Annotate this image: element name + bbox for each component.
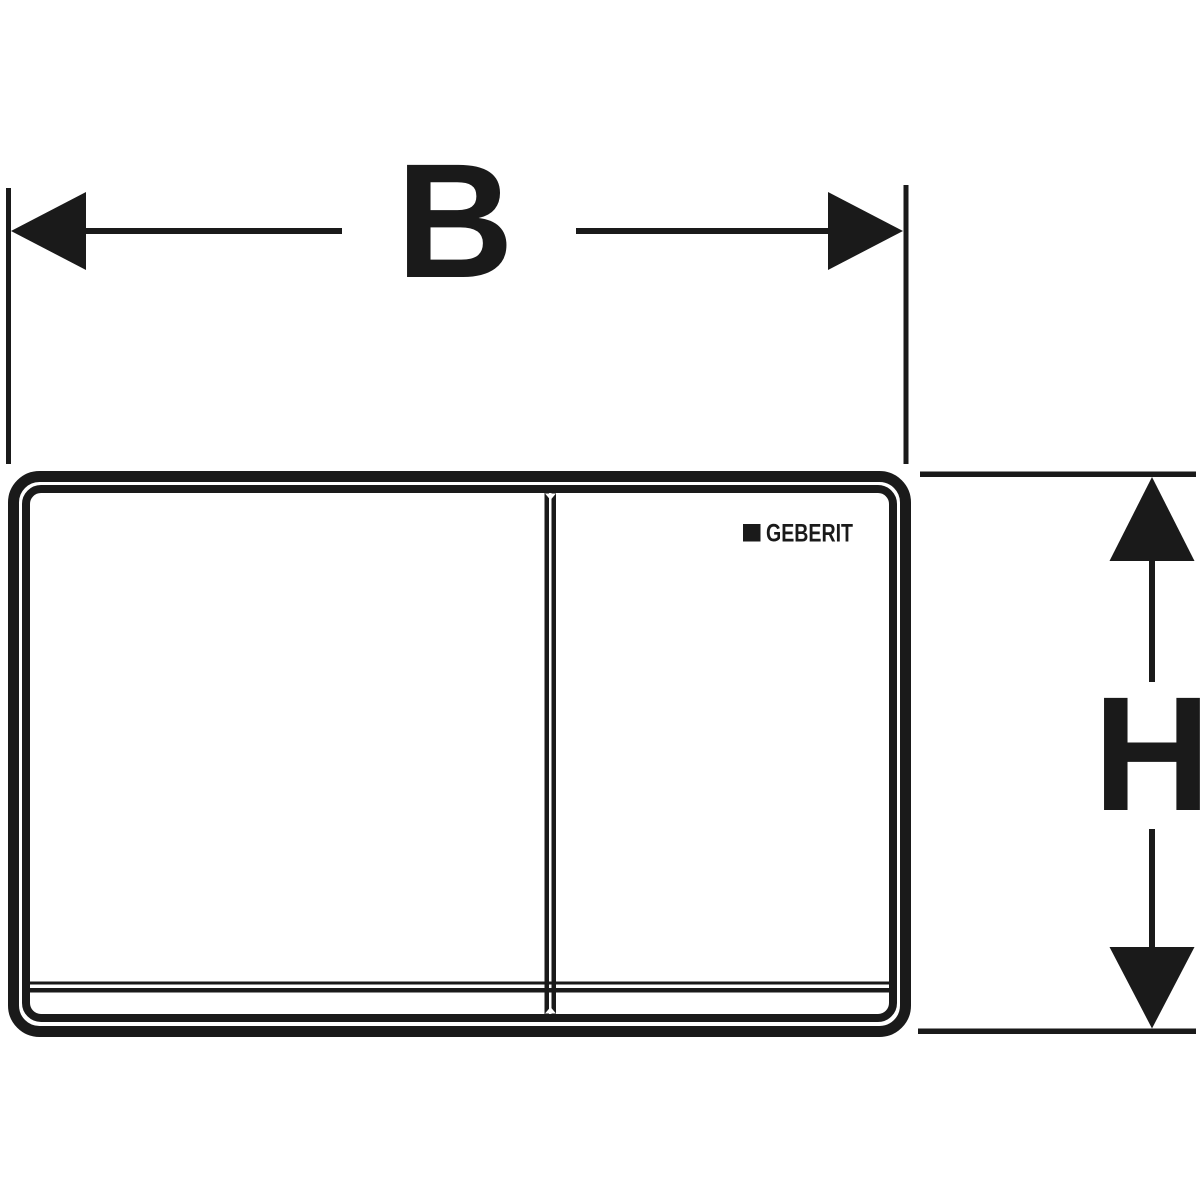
width-dimension: B [6,129,909,464]
height-arrow-down-icon [1110,947,1195,1029]
width-extension-line-left [6,188,11,464]
flush-plate-dimension-drawing: B GEBERIT [0,0,1200,1200]
technical-drawing-canvas: B GEBERIT [0,0,1200,1200]
plate-bottom-detail-line-upper [30,982,889,985]
width-dimension-line-left-segment [84,228,342,234]
width-dimension-label: B [396,129,514,312]
plate-outer-frame [14,477,906,1032]
brand-logo: GEBERIT [743,520,853,548]
button-divider-line-right [552,493,557,1014]
height-dimension-line-bottom-segment [1149,829,1155,951]
height-arrow-up-icon [1110,477,1195,561]
height-extension-line-bottom [918,1029,1196,1035]
plate-bottom-detail-line-lower [30,988,889,993]
width-arrow-right-icon [828,192,903,270]
height-dimension: H [918,472,1200,1035]
width-extension-line-right [904,185,909,464]
plate-inner-frame [26,489,893,1018]
brand-logo-text: GEBERIT [766,520,853,548]
button-divider-line-left [545,493,550,1014]
brand-logo-square-icon [743,524,761,542]
height-extension-line-top [920,472,1196,478]
width-dimension-line-right-segment [576,228,830,234]
width-arrow-left-icon [11,192,86,270]
flush-plate: GEBERIT [14,477,906,1032]
height-dimension-label: H [1093,662,1200,845]
